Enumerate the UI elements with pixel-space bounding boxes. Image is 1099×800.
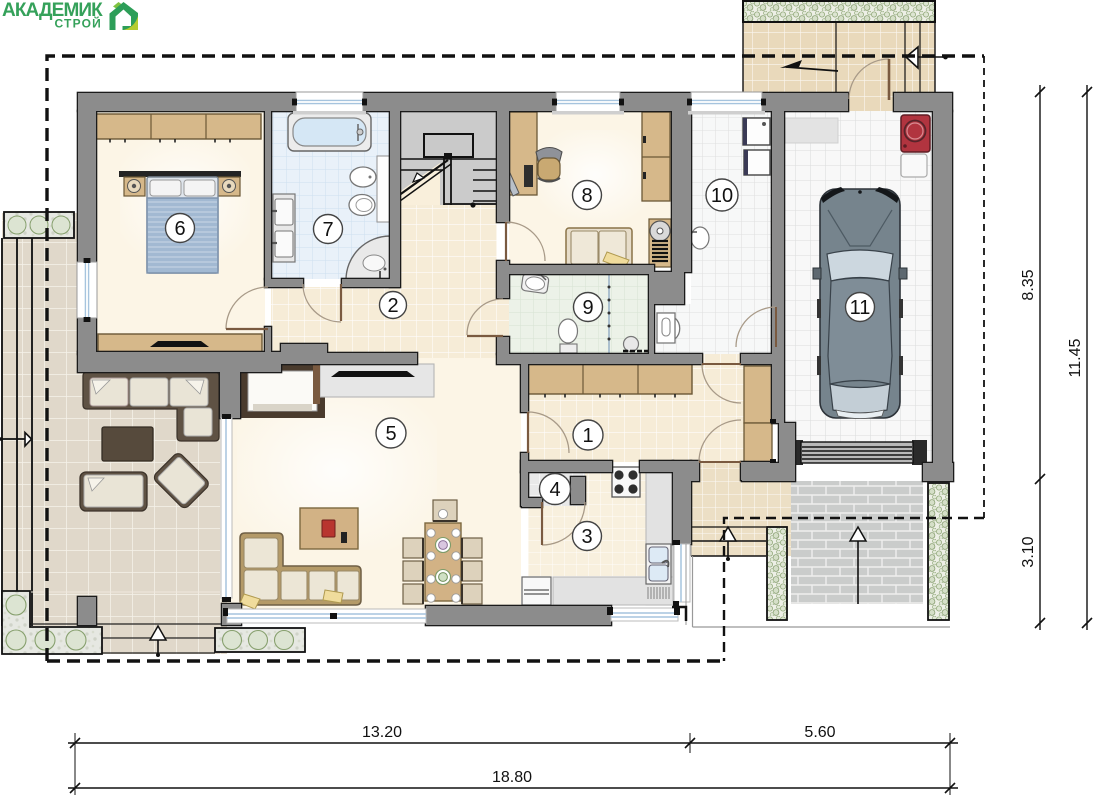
svg-text:4: 4 xyxy=(549,479,560,501)
svg-text:11.45: 11.45 xyxy=(1067,338,1084,377)
svg-text:5.60: 5.60 xyxy=(804,724,835,741)
svg-text:13.20: 13.20 xyxy=(362,724,402,741)
svg-text:3: 3 xyxy=(581,526,592,548)
svg-text:6: 6 xyxy=(174,218,185,240)
svg-text:3.10: 3.10 xyxy=(1020,536,1037,567)
svg-text:18.80: 18.80 xyxy=(492,769,532,786)
svg-text:СТРОЙ: СТРОЙ xyxy=(54,16,102,31)
svg-text:1: 1 xyxy=(582,425,593,447)
svg-text:9: 9 xyxy=(582,297,593,319)
svg-text:7: 7 xyxy=(322,219,333,241)
svg-text:8.35: 8.35 xyxy=(1020,269,1037,300)
svg-text:5: 5 xyxy=(385,423,396,445)
svg-text:8: 8 xyxy=(581,185,592,207)
svg-text:11: 11 xyxy=(850,297,871,319)
svg-text:2: 2 xyxy=(387,295,398,317)
svg-text:10: 10 xyxy=(711,185,733,207)
